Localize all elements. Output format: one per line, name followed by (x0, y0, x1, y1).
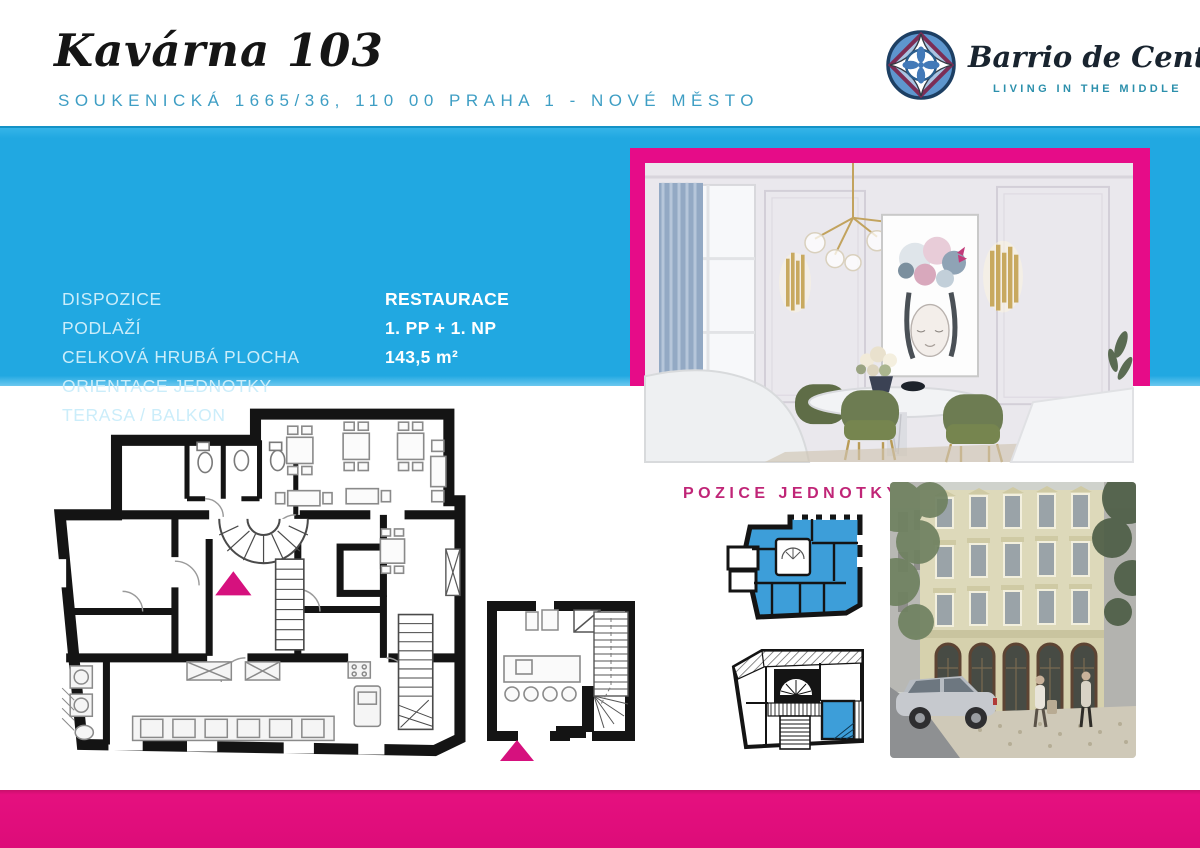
info-value: – (385, 378, 509, 396)
brochure-page: Kavárna 103 SOUKENICKÁ 1665/36, 110 00 P… (0, 0, 1200, 848)
position-diagram-basement (728, 513, 868, 635)
floorplan-basement (46, 398, 464, 768)
info-label: PODLAŽÍ (62, 320, 385, 338)
info-label: CELKOVÁ HRUBÁ PLOCHA (62, 349, 385, 367)
info-value: 143,5 m² (385, 349, 509, 367)
info-label: ORIENTACE JEDNOTKY (62, 378, 385, 396)
building-photo-illustration (890, 482, 1136, 758)
page-title: Kavárna 103 (54, 24, 384, 77)
entrance-marker-triangle (500, 740, 534, 761)
interior-photo-illustration (645, 163, 1133, 462)
info-label: DISPOZICE (62, 291, 385, 309)
unit-highlight (822, 701, 854, 739)
property-address: SOUKENICKÁ 1665/36, 110 00 PRAHA 1 - NOV… (58, 91, 759, 111)
info-value: RESTAURACE (385, 291, 509, 309)
footer-band: Kontakt Barrio de Centro s. r. o., Souke… (0, 790, 1200, 848)
floorplan-ground (478, 598, 644, 784)
brand-rosette-icon (884, 28, 958, 102)
info-value: 1. PP + 1. NP (385, 320, 509, 338)
spiral-stair-mini (776, 539, 810, 575)
artwork (882, 215, 978, 376)
wall-sconce-right (983, 241, 1023, 313)
bowl (901, 381, 925, 391)
position-section-title: POZICE JEDNOTKY (683, 485, 902, 503)
position-diagram-ground (722, 643, 868, 757)
brand-tagline: LIVING IN THE MIDDLE (993, 83, 1182, 95)
stair-lower-right (399, 615, 433, 730)
brand-name: Barrio de Centro (968, 40, 1200, 74)
wall-sconce-left (779, 253, 811, 313)
